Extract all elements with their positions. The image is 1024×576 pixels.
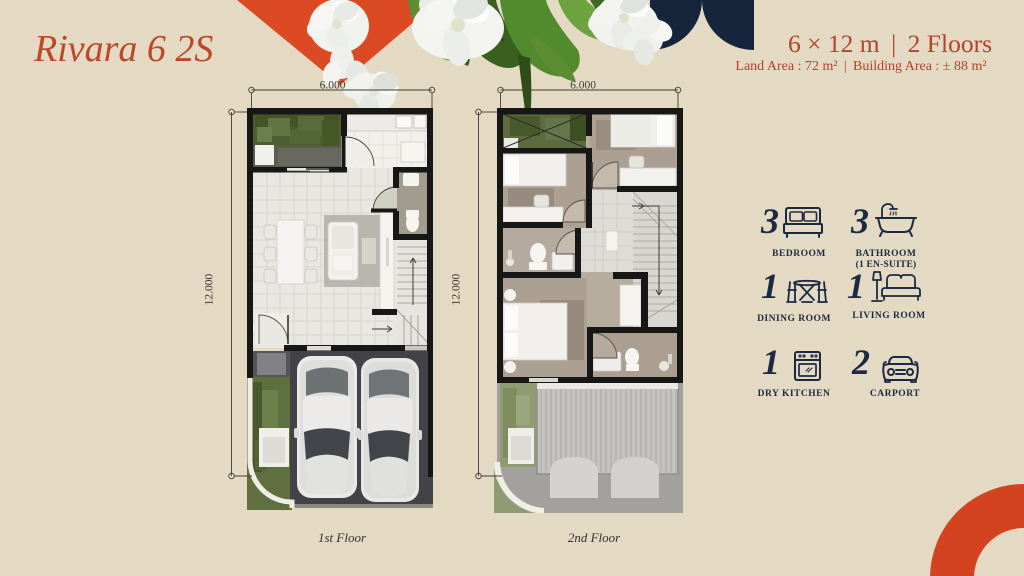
- svg-text:Rivara 6 2S: Rivara 6 2S: [33, 28, 213, 70]
- svg-text:2nd Floor: 2nd Floor: [568, 530, 621, 545]
- svg-text:BEDROOM: BEDROOM: [772, 249, 826, 259]
- svg-text:1st Floor: 1st Floor: [318, 530, 367, 545]
- svg-text:3: 3: [850, 201, 869, 241]
- svg-text:2: 2: [851, 342, 870, 382]
- svg-text:12.000: 12.000: [451, 273, 463, 305]
- svg-text:DINING ROOM: DINING ROOM: [757, 314, 831, 324]
- svg-text:6 × 12 m | 2 Floors: 6 × 12 m | 2 Floors: [788, 29, 992, 58]
- svg-text:LIVING ROOM: LIVING ROOM: [852, 311, 925, 321]
- svg-text:6.000: 6.000: [320, 80, 346, 92]
- svg-text:3: 3: [760, 201, 779, 241]
- svg-text:1: 1: [762, 342, 780, 382]
- svg-text:1: 1: [847, 266, 865, 306]
- svg-text:6.000: 6.000: [570, 80, 596, 92]
- svg-text:DRY KITCHEN: DRY KITCHEN: [758, 389, 831, 399]
- svg-text:CARPORT: CARPORT: [870, 389, 920, 399]
- svg-text:1: 1: [761, 266, 779, 306]
- svg-text:BATHROOM: BATHROOM: [856, 249, 917, 259]
- svg-text:12.000: 12.000: [204, 273, 216, 305]
- svg-text:Land Area : 72 m² | Building: Land Area : 72 m² | Building Area : ± 88…: [735, 59, 986, 74]
